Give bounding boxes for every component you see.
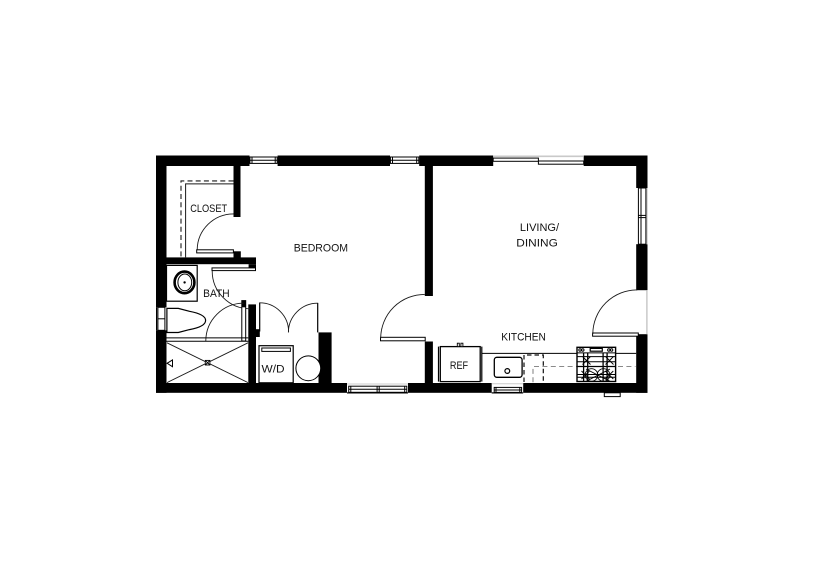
svg-text:REF: REF <box>450 360 468 372</box>
svg-text:KITCHEN: KITCHEN <box>501 331 546 343</box>
svg-text:W/D: W/D <box>262 364 285 376</box>
svg-text:CLOSET: CLOSET <box>190 204 227 216</box>
svg-text:BATH: BATH <box>203 288 230 300</box>
svg-text:BEDROOM: BEDROOM <box>294 243 348 255</box>
svg-text:DINING: DINING <box>516 238 558 250</box>
svg-text:LIVING/: LIVING/ <box>520 222 560 234</box>
